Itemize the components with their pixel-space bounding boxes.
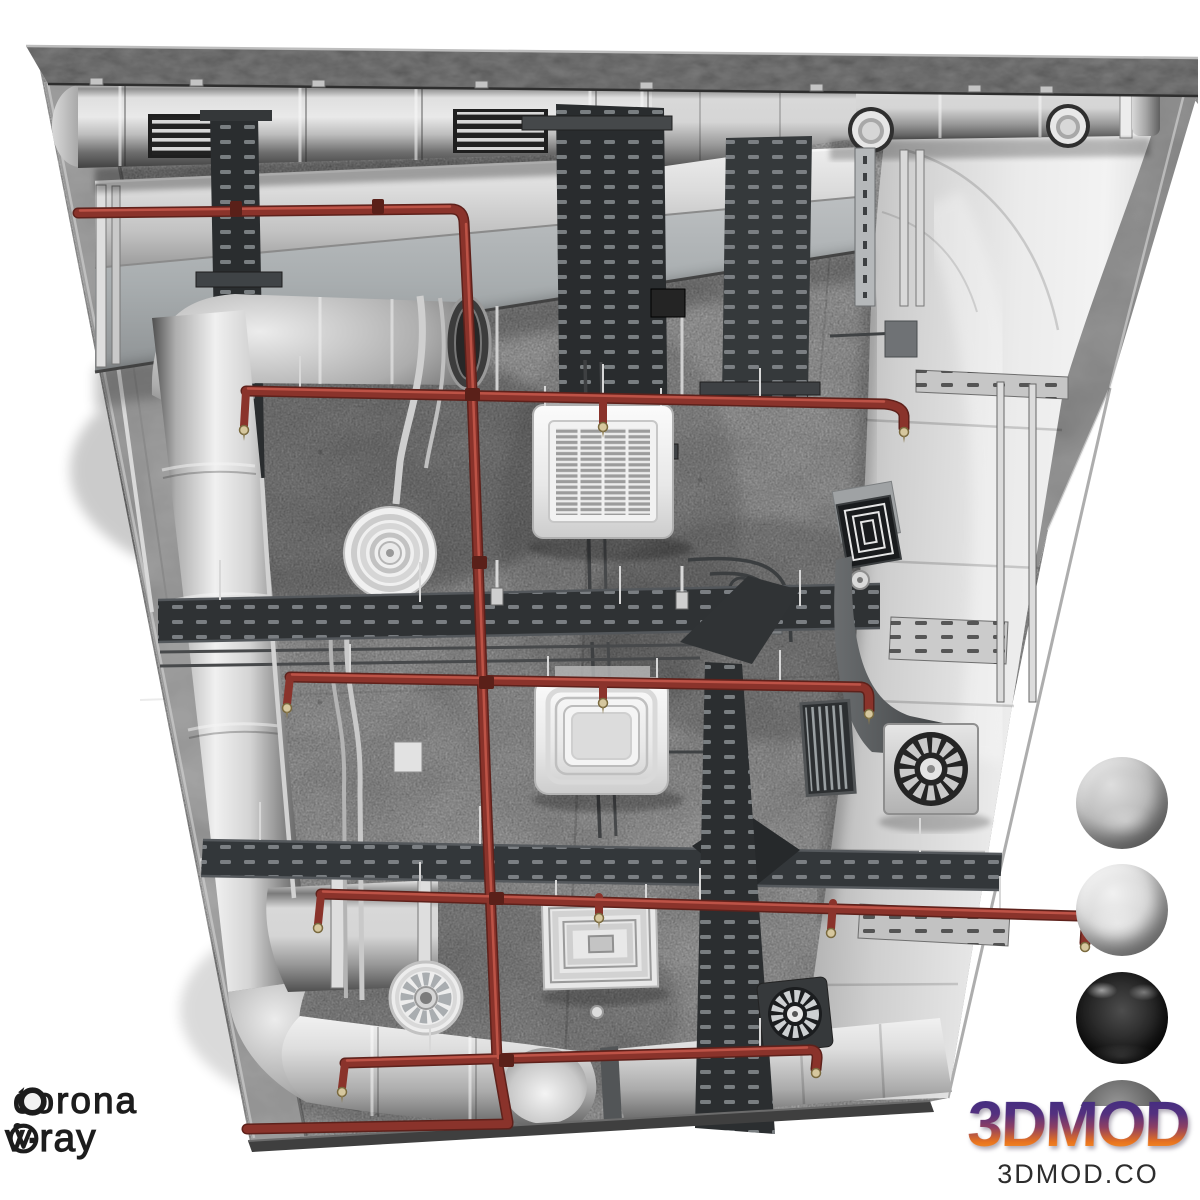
small-round-diffuser-center	[857, 577, 863, 583]
corona-renderer-icon	[13, 1082, 50, 1119]
vray-icon	[5, 1119, 42, 1156]
duct-takeoff-collar-2	[1046, 104, 1090, 148]
axial-fan	[390, 962, 462, 1034]
material-sphere-concrete	[1076, 757, 1168, 849]
vray-logo: v·ray	[5, 1119, 97, 1158]
ceiling-cassette-1	[528, 396, 692, 561]
product-showcase: corona v·ray 3DMOD 3DMOD.CO	[0, 0, 1200, 1200]
hvac-ceiling-render	[0, 0, 1200, 1200]
material-sphere-galvanized	[1076, 864, 1168, 956]
square-supply-diffuser	[539, 898, 670, 1007]
3dmod-brand: 3DMOD 3DMOD.CO	[956, 1092, 1200, 1190]
corona-renderer-logo: corona	[13, 1082, 138, 1119]
3dmod-website: 3DMOD.CO	[956, 1159, 1200, 1190]
material-sphere-black-glossy	[1076, 972, 1168, 1064]
duct-takeoff-collar-1	[848, 107, 894, 153]
3dmod-logo-text: 3DMOD	[955, 1092, 1200, 1156]
